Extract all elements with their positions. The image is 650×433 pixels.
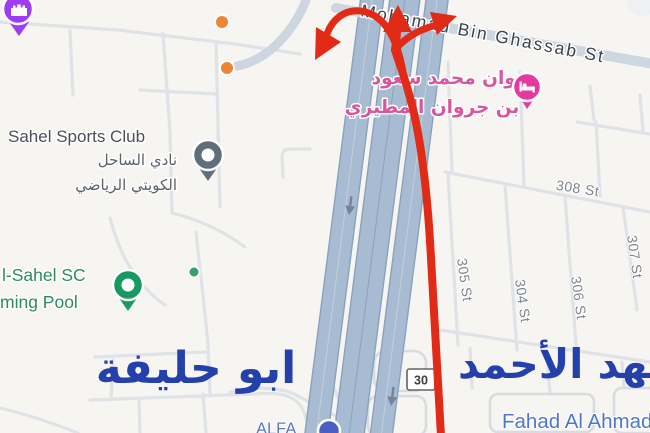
svg-text:30: 30 bbox=[414, 374, 428, 388]
district-label-fahad-en: Fahad Al Ahmad bbox=[502, 410, 650, 433]
swimming-pool-label-line1[interactable]: l-Sahel SC bbox=[2, 265, 86, 285]
green-dot-poi[interactable] bbox=[189, 267, 200, 278]
swimming-pool-label-line2[interactable]: ming Pool bbox=[0, 292, 78, 312]
district-label-fahad-ar: فهد الأحمد bbox=[458, 338, 650, 388]
sports-club-dot-icon bbox=[202, 149, 215, 162]
sahel-sports-club-label-ar2[interactable]: الكويتي الرياضي bbox=[75, 176, 177, 195]
blue-poi-dot[interactable] bbox=[318, 420, 340, 433]
orange-dot-poi[interactable] bbox=[215, 15, 229, 29]
alfa-label[interactable]: ALFA bbox=[256, 420, 296, 433]
swimming-pool-dot-icon bbox=[122, 279, 135, 292]
orange-dot-poi[interactable] bbox=[220, 61, 234, 75]
diwan-label-line1[interactable]: ديوان محمد سعود bbox=[372, 68, 533, 89]
sahel-sports-club-label-ar1[interactable]: نادي الساحل bbox=[98, 151, 177, 170]
district-label-abu-halifa: ابو حليفة bbox=[96, 343, 297, 394]
diwan-label-line2[interactable]: بن جروان المطيري bbox=[345, 97, 520, 119]
map-canvas[interactable]: Mohamad Bin Ghassab St 308 St 305 St 304… bbox=[0, 0, 650, 433]
route-shield-30: 30 bbox=[407, 369, 435, 390]
castle-icon bbox=[11, 5, 27, 17]
sahel-sports-club-label[interactable]: Sahel Sports Club bbox=[8, 127, 145, 146]
